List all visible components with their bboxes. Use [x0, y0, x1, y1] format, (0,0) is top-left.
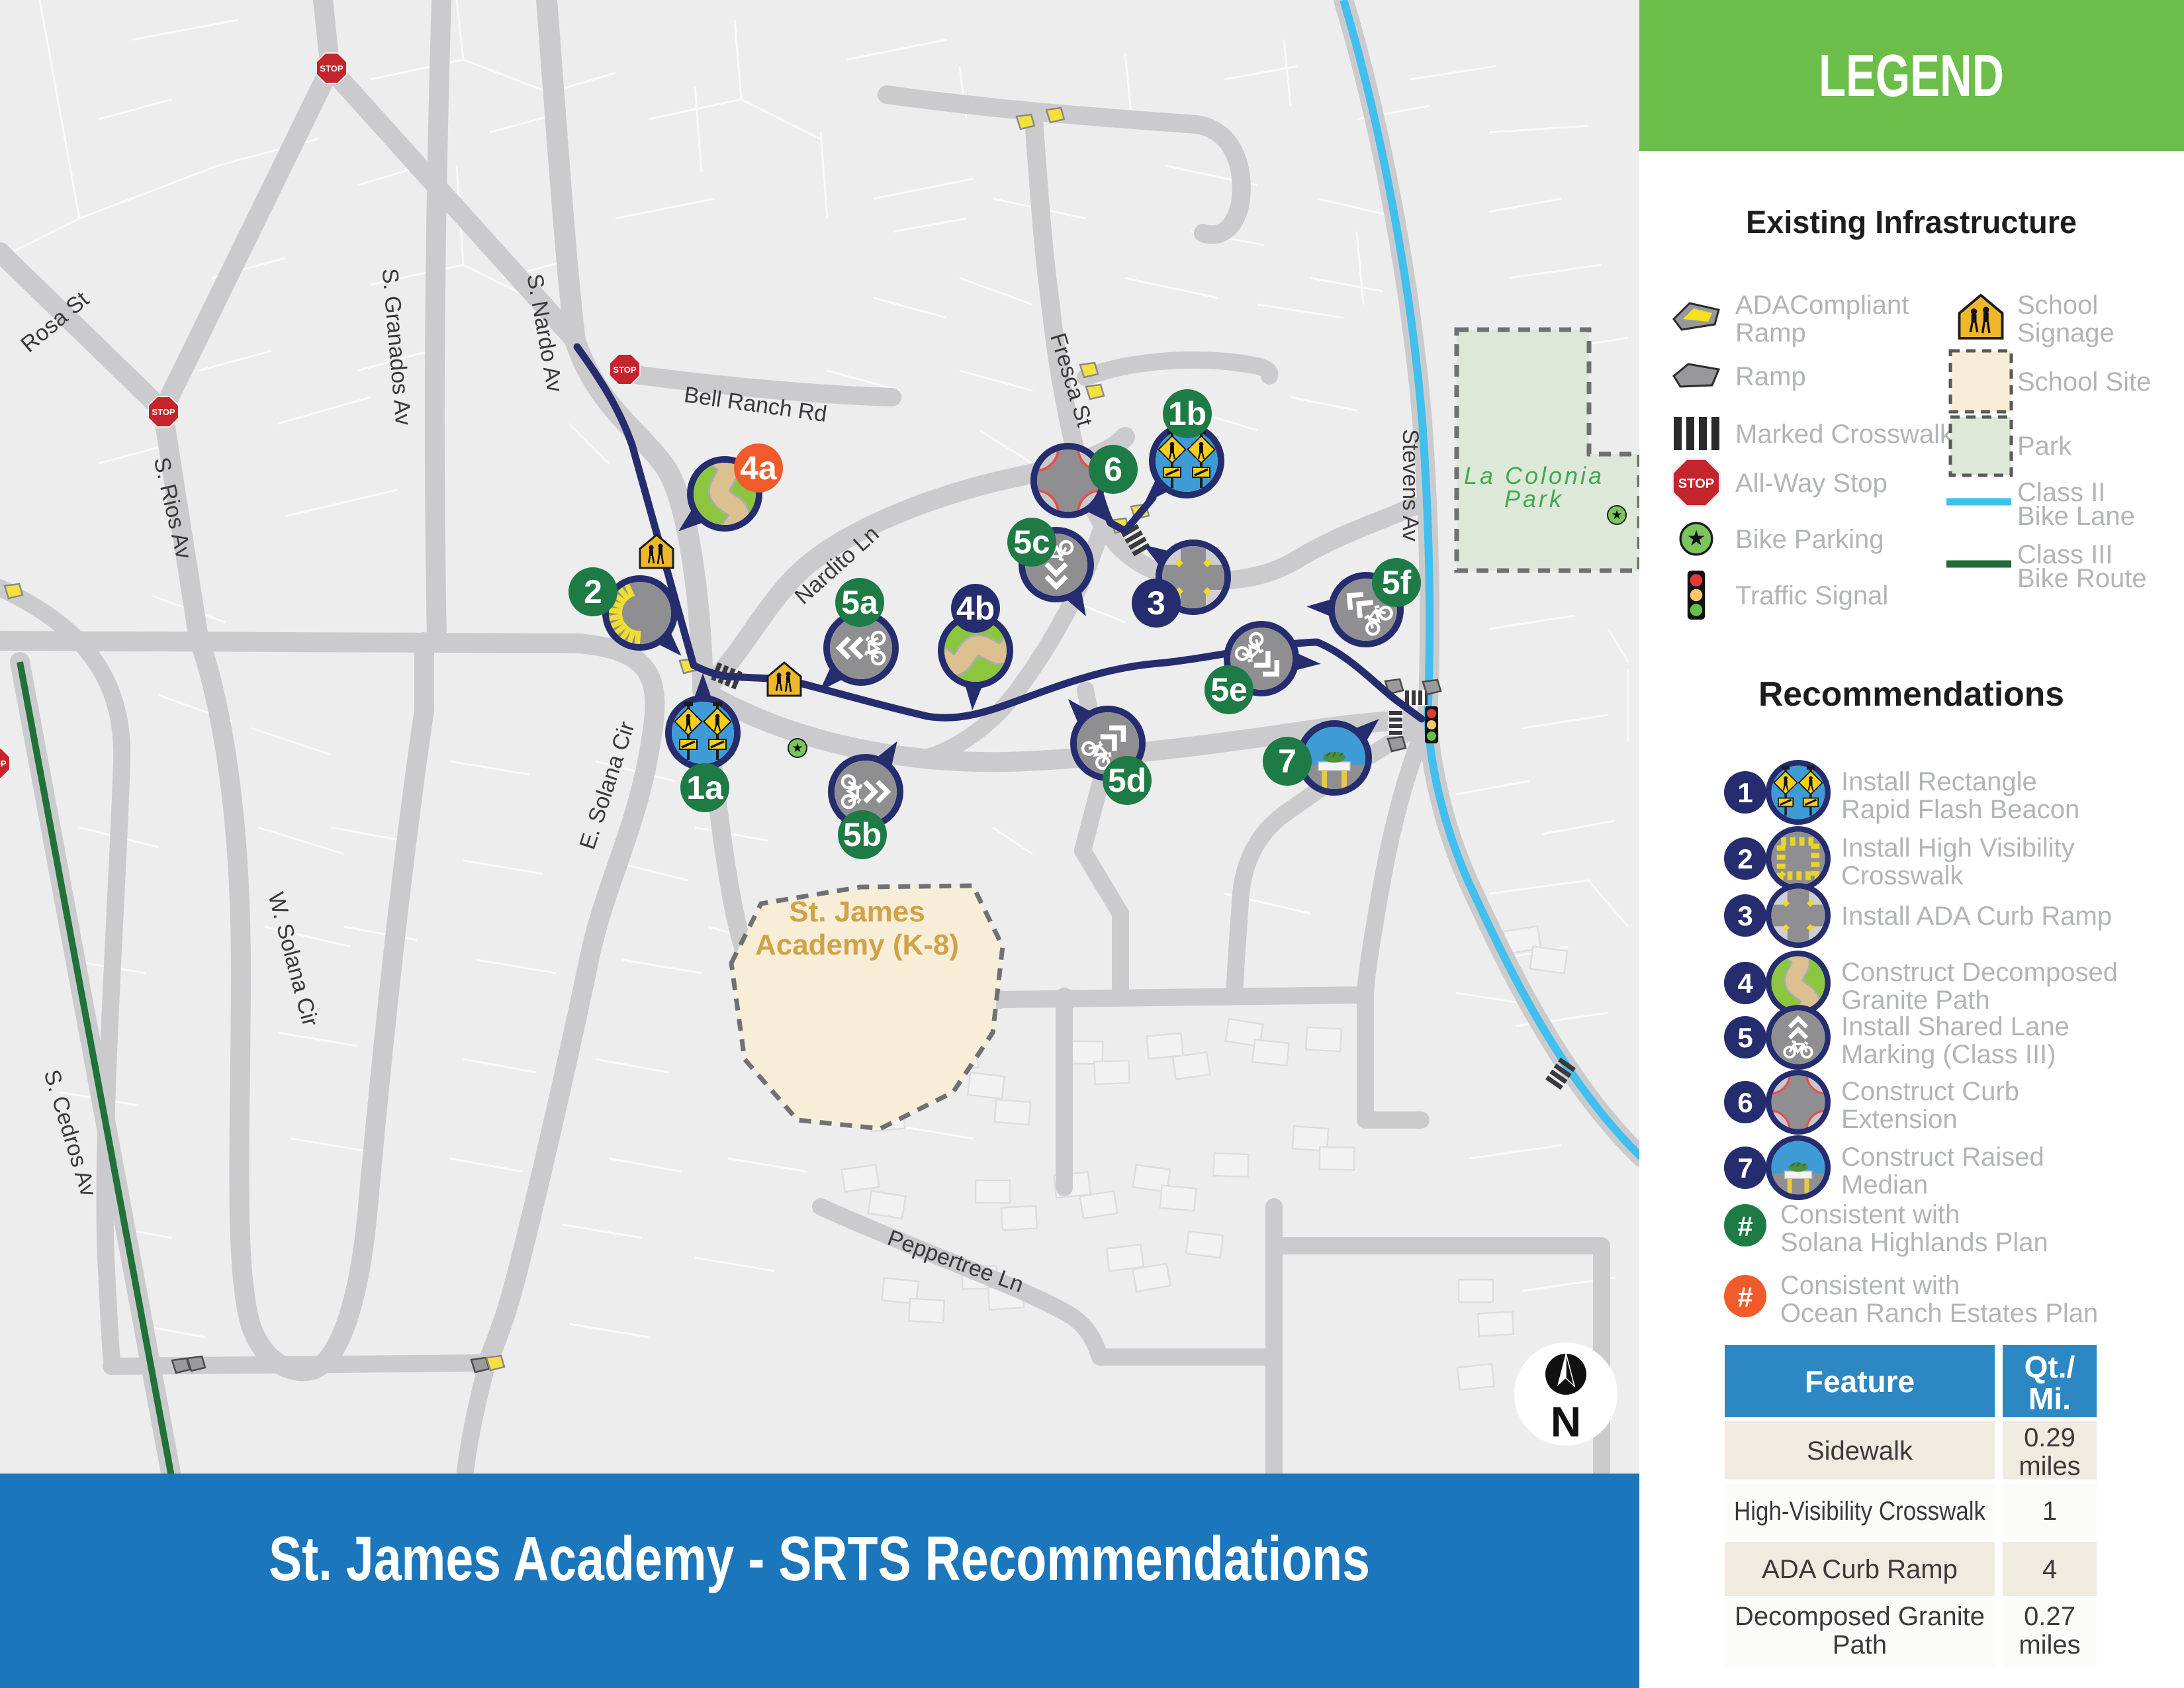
svg-text:Traffic Signal: Traffic Signal	[1735, 581, 1888, 610]
svg-text:St. James Academy - SRTS Recom: St. James Academy - SRTS Recommendations	[269, 1524, 1370, 1594]
svg-text:Ramp: Ramp	[1735, 362, 1806, 391]
svg-text:Feature: Feature	[1805, 1364, 1915, 1399]
svg-text:Marked Crosswalk: Marked Crosswalk	[1735, 420, 1954, 449]
svg-text:2: 2	[1737, 843, 1752, 874]
svg-text:5b: 5b	[843, 816, 882, 853]
svg-text:5c: 5c	[1013, 524, 1050, 561]
svg-text:Decomposed Granite: Decomposed Granite	[1735, 1602, 1985, 1631]
svg-text:7: 7	[1278, 743, 1297, 780]
svg-text:Ramp: Ramp	[1735, 318, 1806, 348]
svg-text:0.27: 0.27	[2024, 1602, 2075, 1631]
svg-text:7: 7	[1737, 1152, 1752, 1184]
svg-text:6: 6	[1104, 451, 1122, 488]
svg-text:St. James: St. James	[789, 896, 925, 928]
svg-text:Solana Highlands Plan: Solana Highlands Plan	[1780, 1228, 2048, 1257]
svg-text:High-Visibility Crosswalk: High-Visibility Crosswalk	[1734, 1497, 1986, 1526]
svg-text:0.29: 0.29	[2024, 1423, 2075, 1452]
svg-text:Bike Lane: Bike Lane	[2017, 502, 2135, 531]
svg-text:ADACompliant: ADACompliant	[1735, 291, 1909, 320]
svg-text:1b: 1b	[1168, 395, 1206, 432]
svg-text:#: #	[1737, 1282, 1752, 1313]
svg-text:1: 1	[1737, 777, 1752, 808]
svg-text:Install Shared Lane: Install Shared Lane	[1841, 1012, 2070, 1041]
svg-text:Recommendations: Recommendations	[1758, 675, 2064, 714]
svg-text:6: 6	[1737, 1087, 1752, 1118]
svg-text:Extension: Extension	[1841, 1105, 1958, 1134]
svg-text:Crosswalk: Crosswalk	[1841, 861, 1964, 890]
svg-text:Median: Median	[1841, 1170, 1928, 1199]
svg-text:Existing Infrastructure: Existing Infrastructure	[1746, 205, 2077, 240]
svg-text:Install ADA Curb Ramp: Install ADA Curb Ramp	[1841, 902, 2112, 931]
svg-text:Stevens Av: Stevens Av	[1398, 429, 1423, 541]
svg-text:5a: 5a	[841, 584, 879, 621]
svg-text:Signage: Signage	[2017, 318, 2115, 348]
svg-text:5: 5	[1737, 1022, 1752, 1053]
svg-text:LEGEND: LEGEND	[1819, 43, 2004, 109]
svg-text:#: #	[1737, 1211, 1752, 1242]
svg-text:3: 3	[1737, 900, 1752, 931]
svg-text:miles: miles	[2019, 1452, 2080, 1481]
svg-text:Qt./: Qt./	[2025, 1350, 2075, 1384]
svg-text:5e: 5e	[1210, 671, 1248, 708]
svg-text:miles: miles	[2019, 1630, 2080, 1660]
svg-text:Consistent with: Consistent with	[1780, 1200, 1960, 1229]
svg-text:3: 3	[1147, 585, 1165, 622]
svg-text:Install High Visibility: Install High Visibility	[1841, 833, 2075, 863]
svg-text:Granite Path: Granite Path	[1841, 986, 1990, 1015]
svg-text:Ocean Ranch Estates Plan: Ocean Ranch Estates Plan	[1780, 1299, 2098, 1328]
svg-text:Construct Decomposed: Construct Decomposed	[1841, 958, 2118, 987]
svg-text:Rapid Flash Beacon: Rapid Flash Beacon	[1841, 795, 2079, 824]
svg-text:4: 4	[2042, 1555, 2057, 1584]
svg-text:Install Rectangle: Install Rectangle	[1841, 767, 2037, 796]
svg-text:Marking (Class III): Marking (Class III)	[1841, 1040, 2056, 1069]
svg-text:2: 2	[584, 573, 602, 610]
svg-text:Sidewalk: Sidewalk	[1807, 1436, 1913, 1466]
svg-text:Bike Parking: Bike Parking	[1735, 525, 1884, 554]
svg-text:Bike Route: Bike Route	[2017, 564, 2147, 593]
svg-text:4: 4	[1737, 968, 1753, 999]
svg-text:Park: Park	[1504, 485, 1564, 512]
svg-text:Mi.: Mi.	[2028, 1382, 2071, 1416]
svg-text:School Site: School Site	[2017, 367, 2151, 397]
svg-text:5f: 5f	[1382, 564, 1412, 601]
svg-text:ADA Curb Ramp: ADA Curb Ramp	[1762, 1555, 1958, 1584]
svg-text:Construct Raised: Construct Raised	[1841, 1143, 2044, 1172]
svg-text:Consistent with: Consistent with	[1780, 1271, 1960, 1300]
svg-text:1: 1	[2042, 1497, 2057, 1526]
svg-text:Path: Path	[1833, 1630, 1887, 1660]
svg-text:All-Way Stop: All-Way Stop	[1735, 469, 1888, 498]
svg-text:4b: 4b	[956, 590, 995, 627]
svg-text:Park: Park	[2017, 432, 2072, 461]
svg-text:Academy (K-8): Academy (K-8)	[755, 929, 959, 961]
svg-text:4a: 4a	[740, 449, 778, 487]
svg-text:Construct Curb: Construct Curb	[1841, 1077, 2019, 1106]
svg-text:1a: 1a	[686, 769, 724, 806]
svg-text:School: School	[2017, 291, 2098, 320]
svg-text:5d: 5d	[1108, 762, 1146, 799]
